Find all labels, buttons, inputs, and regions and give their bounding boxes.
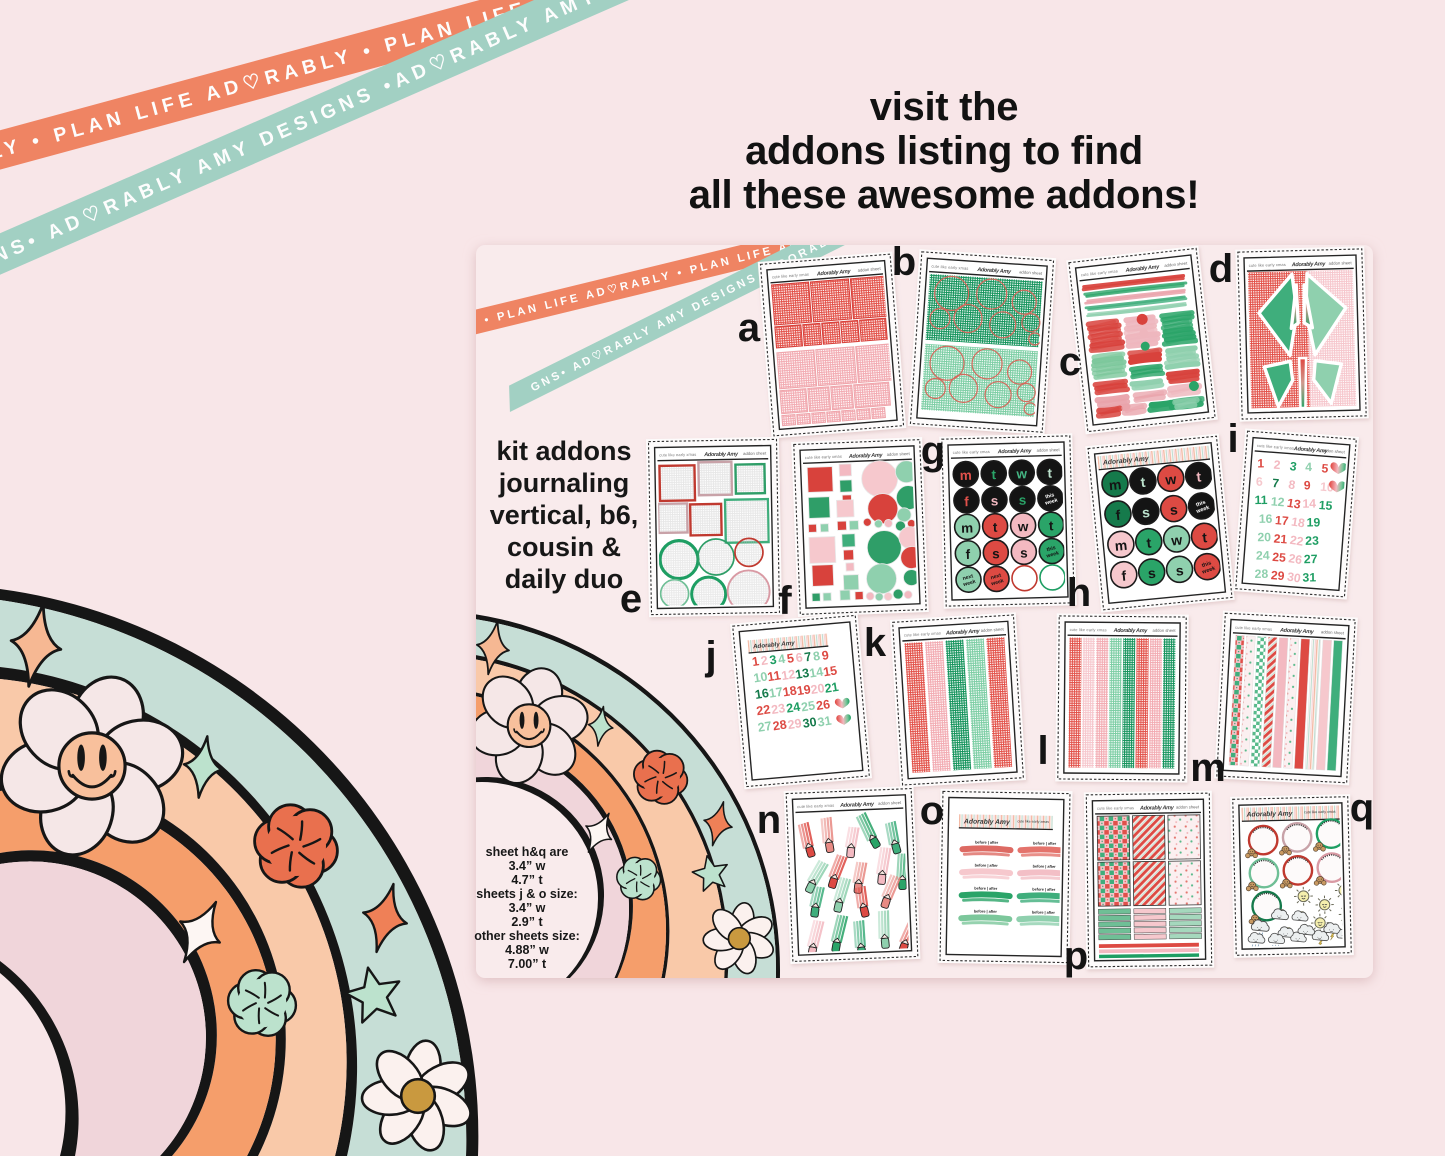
svg-text:23: 23 (770, 701, 786, 717)
svg-text:11: 11 (1254, 493, 1267, 507)
svg-text:m: m (960, 468, 972, 483)
svg-text:2: 2 (1273, 458, 1281, 472)
svg-text:28: 28 (1255, 567, 1269, 581)
svg-text:d: d (1209, 247, 1233, 291)
svg-text:15: 15 (822, 663, 838, 679)
svg-text:5: 5 (1321, 461, 1329, 475)
svg-text:f: f (778, 579, 792, 623)
svg-text:sheets j & o size:: sheets j & o size: (476, 887, 577, 901)
svg-text:a: a (738, 306, 761, 350)
svg-text:addon sheet: addon sheet (887, 451, 911, 457)
svg-text:addon sheet: addon sheet (1329, 260, 1353, 266)
svg-text:g: g (921, 429, 945, 473)
svg-text:Adorably Amy: Adorably Amy (1291, 261, 1327, 268)
svg-text:19: 19 (1307, 515, 1321, 529)
svg-text:p: p (1064, 934, 1088, 978)
svg-text:28: 28 (772, 717, 788, 733)
svg-text:h: h (1067, 571, 1091, 615)
svg-text:12: 12 (1270, 494, 1285, 509)
svg-text:cousin &: cousin & (507, 532, 621, 562)
svg-text:3.4” w: 3.4” w (509, 859, 546, 873)
svg-text:26: 26 (815, 697, 831, 713)
svg-text:before | after: before | after (975, 840, 999, 844)
svg-text:17: 17 (1275, 513, 1290, 528)
svg-text:cute like early xmas: cute like early xmas (1097, 805, 1134, 811)
svg-text:s: s (991, 493, 999, 508)
svg-text:21: 21 (1273, 532, 1288, 547)
svg-text:24: 24 (1256, 548, 1270, 562)
svg-text:c: c (1059, 340, 1081, 384)
svg-text:Adorably Amy: Adorably Amy (963, 818, 1011, 826)
svg-text:vertical, b6,: vertical, b6, (490, 500, 639, 530)
svg-text:14: 14 (1302, 497, 1316, 511)
svg-text:Adorably Amy: Adorably Amy (997, 448, 1033, 455)
svg-text:cute like early xmas: cute like early xmas (953, 449, 990, 455)
svg-text:before | after: before | after (974, 909, 998, 913)
svg-text:4.7” t: 4.7” t (511, 873, 543, 887)
svg-text:21: 21 (824, 680, 840, 696)
svg-text:cute like early xmas: cute like early xmas (1304, 810, 1336, 815)
svg-text:other sheets size:: other sheets size: (474, 929, 580, 943)
svg-text:w: w (1015, 466, 1027, 481)
svg-text:30: 30 (1286, 570, 1302, 586)
svg-text:23: 23 (1305, 534, 1319, 548)
svg-text:15: 15 (1318, 498, 1333, 513)
svg-text:cute like early xmas: cute like early xmas (1017, 819, 1049, 824)
svg-text:addon sheet: addon sheet (743, 451, 767, 456)
svg-text:29: 29 (787, 716, 803, 732)
svg-text:journaling: journaling (498, 468, 630, 498)
svg-text:before | after: before | after (1033, 864, 1057, 868)
svg-text:30: 30 (802, 715, 818, 731)
svg-text:s: s (992, 546, 1000, 561)
svg-text:m: m (961, 520, 973, 535)
svg-text:before | after: before | after (1033, 841, 1057, 845)
svg-text:22: 22 (755, 702, 771, 718)
svg-text:addons listing to find: addons listing to find (745, 129, 1143, 173)
svg-text:29: 29 (1270, 568, 1285, 583)
svg-text:m: m (1190, 746, 1226, 790)
svg-text:7.00” t: 7.00” t (508, 957, 547, 971)
svg-text:22: 22 (1289, 533, 1305, 549)
svg-text:Adorably Amy: Adorably Amy (703, 452, 739, 459)
svg-text:m: m (1114, 537, 1128, 554)
svg-text:6: 6 (1256, 475, 1263, 489)
svg-text:25: 25 (1272, 550, 1287, 565)
svg-text:Adorably Amy: Adorably Amy (1246, 811, 1294, 819)
svg-text:addon sheet: addon sheet (878, 800, 902, 806)
svg-text:o: o (920, 789, 944, 833)
svg-text:j: j (704, 634, 716, 678)
svg-text:m: m (1108, 476, 1122, 493)
svg-text:before | after: before | after (974, 886, 998, 890)
svg-text:18: 18 (1290, 514, 1306, 530)
svg-text:cute like early xmas: cute like early xmas (1070, 627, 1107, 632)
svg-text:9: 9 (1304, 478, 1311, 492)
svg-text:7: 7 (1272, 476, 1280, 490)
svg-text:11: 11 (766, 668, 781, 684)
svg-text:20: 20 (1257, 530, 1271, 544)
svg-text:cute like early xmas: cute like early xmas (1249, 262, 1286, 268)
svg-text:sheet h&q are: sheet h&q are (486, 845, 569, 859)
svg-text:visit the: visit the (870, 85, 1018, 129)
svg-text:i: i (1227, 417, 1238, 461)
svg-text:26: 26 (1287, 551, 1303, 567)
svg-text:31: 31 (1302, 570, 1316, 584)
svg-text:before | after: before | after (1032, 910, 1056, 914)
svg-text:24: 24 (785, 700, 801, 716)
svg-text:addon sheet: addon sheet (1176, 804, 1200, 809)
svg-text:k: k (864, 621, 887, 665)
svg-text:before | after: before | after (1032, 887, 1056, 891)
svg-text:27: 27 (1304, 552, 1318, 566)
svg-text:s: s (1019, 493, 1027, 508)
svg-text:n: n (757, 798, 781, 842)
svg-text:27: 27 (757, 719, 773, 735)
svg-text:31: 31 (817, 714, 833, 730)
svg-text:q: q (1350, 786, 1374, 830)
svg-text:1: 1 (1257, 456, 1264, 470)
svg-text:kit addons: kit addons (496, 436, 631, 466)
svg-text:4: 4 (1305, 460, 1312, 474)
svg-text:Adorably Amy: Adorably Amy (1139, 805, 1175, 811)
svg-text:addon sheet: addon sheet (1153, 628, 1177, 633)
svg-text:3.4” w: 3.4” w (509, 901, 546, 915)
svg-text:cute like early xmas: cute like early xmas (659, 452, 696, 458)
svg-text:before | after: before | after (975, 863, 999, 867)
svg-text:daily duo: daily duo (505, 564, 624, 594)
svg-text:w: w (1164, 471, 1177, 488)
svg-text:w: w (1017, 519, 1029, 534)
svg-text:e: e (620, 577, 642, 621)
svg-text:16: 16 (1259, 512, 1273, 526)
svg-text:w: w (1170, 531, 1183, 548)
svg-text:4.88” w: 4.88” w (505, 943, 549, 957)
svg-text:all these awesome addons!: all these awesome addons! (689, 173, 1199, 217)
svg-text:2.9” t: 2.9” t (511, 915, 543, 929)
svg-text:25: 25 (800, 698, 816, 714)
svg-text:b: b (892, 240, 916, 284)
svg-text:s: s (1020, 545, 1028, 560)
svg-text:addon sheet: addon sheet (1037, 447, 1061, 453)
svg-text:Adorably Amy: Adorably Amy (1113, 628, 1149, 634)
svg-text:13: 13 (1286, 496, 1302, 512)
svg-text:l: l (1037, 729, 1048, 773)
